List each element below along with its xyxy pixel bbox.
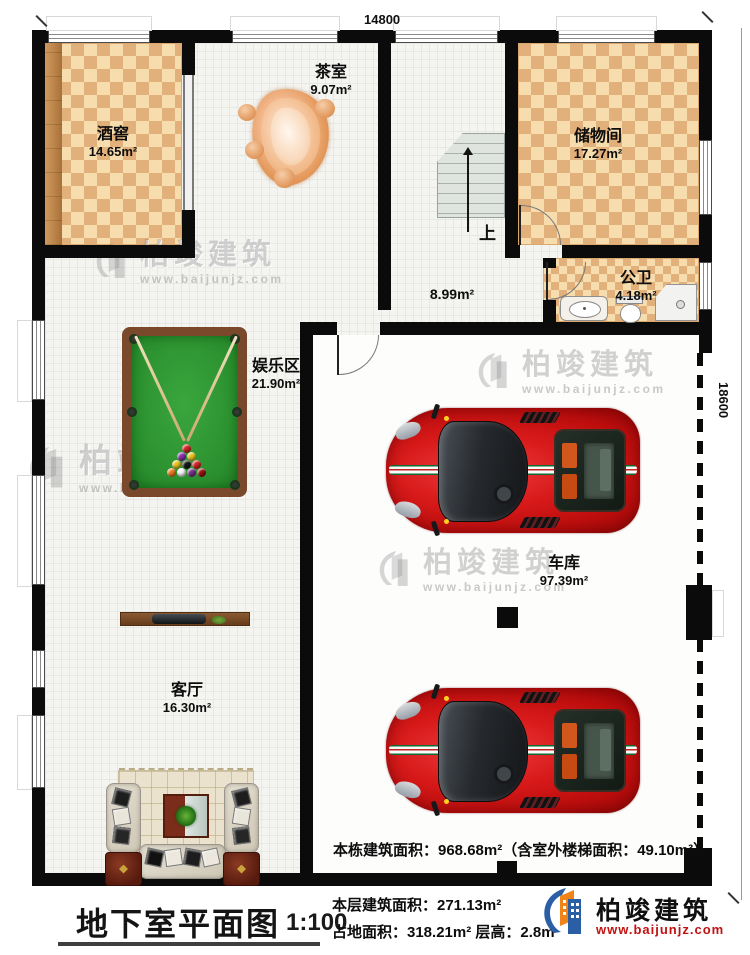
wall-segment [182, 43, 195, 75]
sheet-title: 地下室平面图 [76, 899, 280, 945]
room-label-tea-room: 茶室 9.07m² [310, 64, 351, 97]
window [558, 30, 655, 43]
sink-drain [583, 307, 586, 310]
dimension-right-value: 18600 [716, 382, 731, 418]
room-label-living-room: 客厅 16.30m² [163, 682, 211, 715]
room-area: 16.30m² [163, 700, 211, 716]
room-name: 茶室 [310, 64, 351, 82]
wall-pier [686, 585, 712, 640]
window [32, 475, 45, 585]
stair-direction-arrow [467, 150, 469, 232]
wine-cellar-shelf [45, 43, 62, 245]
table-pocket [129, 480, 139, 490]
wall-segment [32, 400, 45, 475]
car-vent [519, 797, 561, 808]
billiard-ball [167, 468, 176, 477]
room-name: 公卫 [615, 270, 656, 288]
room-label-wine-cellar: 酒窖 14.65m² [89, 126, 137, 159]
window-sill [17, 320, 32, 402]
car-engine-bay [554, 429, 626, 512]
garden-stone [238, 104, 256, 121]
window [699, 140, 712, 215]
room-label-bathroom: 公卫 4.18m² [615, 270, 656, 303]
window [48, 30, 150, 43]
wall-segment [32, 585, 45, 650]
brand-website: www.baijunjz.com [596, 922, 724, 937]
pillow [200, 847, 220, 867]
sports-car-2 [386, 688, 640, 813]
room-area: 8.99m² [430, 286, 474, 303]
window-sill [17, 475, 32, 587]
wall-segment [380, 322, 712, 335]
sliding-door [183, 75, 194, 210]
billiard-ball [197, 468, 206, 477]
room-area: 9.07m² [310, 82, 351, 98]
room-name: 娱乐区 [252, 358, 300, 376]
room-label-hall: 8.99m² [430, 286, 474, 303]
dimension-tick [701, 11, 713, 23]
room-area: 21.90m² [252, 376, 300, 392]
wall-segment [32, 43, 45, 320]
pillow [112, 807, 131, 826]
room-label-entertainment: 娱乐区 21.90m² [252, 358, 300, 391]
window [232, 30, 338, 43]
window [395, 30, 498, 43]
car-badge [444, 519, 449, 524]
room-name: 车库 [540, 555, 588, 573]
pillow [164, 848, 183, 867]
window [32, 650, 45, 688]
title-underline [58, 942, 320, 946]
garden-stone [315, 99, 335, 118]
billiard-ball [177, 468, 186, 477]
pillow [112, 826, 131, 845]
garden-stone [245, 141, 264, 159]
room-name: 储物间 [574, 128, 622, 146]
pillow [144, 847, 164, 867]
window-sill [46, 16, 152, 31]
floor-area-stat: 本层建筑面积：271.13m² [332, 894, 501, 915]
wall-segment [699, 43, 712, 140]
dimension-top-value: 14800 [364, 12, 400, 27]
window-sill [17, 715, 32, 790]
dimension-line-right [741, 28, 742, 900]
side-table [223, 852, 260, 886]
pillow [232, 807, 251, 826]
room-label-garage: 车库 97.39m² [540, 555, 588, 588]
window-sill [393, 16, 500, 31]
shower-drain [676, 300, 685, 309]
wall-pier [497, 861, 517, 873]
car-vent [519, 692, 561, 703]
table-pocket [232, 407, 242, 417]
table-plant [176, 806, 196, 826]
wall-segment [655, 30, 712, 43]
window-sill [712, 590, 724, 637]
brand-logo-icon [542, 886, 592, 940]
wall-segment [378, 43, 391, 310]
side-table [105, 852, 142, 886]
room-area: 17.27m² [574, 146, 622, 162]
wall-segment [32, 688, 45, 715]
car-badge [444, 696, 449, 701]
side-table-knob [237, 865, 246, 874]
steering-wheel [494, 484, 514, 504]
wall-segment [300, 322, 313, 886]
steering-wheel [494, 764, 514, 784]
car-badge [444, 416, 449, 421]
window [699, 262, 712, 310]
structural-column [497, 607, 518, 628]
side-table-knob [119, 865, 128, 874]
room-label-storage: 储物间 17.27m² [574, 128, 622, 161]
wall-segment [505, 245, 520, 258]
building-area-note: 本栋建筑面积：968.68m²（含室外楼梯面积：49.10m²） [333, 839, 708, 860]
toilet [620, 304, 641, 323]
car-windshield [438, 701, 528, 802]
wall-segment [32, 30, 48, 43]
car-engine-bay [554, 709, 626, 792]
room-area: 4.18m² [615, 288, 656, 304]
wall-segment [338, 30, 395, 43]
room-name: 客厅 [163, 682, 211, 700]
garden-stone [274, 168, 295, 188]
window-sill [556, 16, 657, 31]
room-area: 97.39m² [540, 573, 588, 589]
stair-up-label: 上 [479, 219, 496, 244]
wall-segment [498, 30, 558, 43]
car-windshield [438, 421, 528, 522]
sports-car-1 [386, 408, 640, 533]
room-name: 酒窖 [89, 126, 137, 144]
billiard-ball [187, 468, 196, 477]
footprint-stat: 占地面积：318.21m² 层高：2.8m [332, 921, 555, 942]
car-badge [444, 799, 449, 804]
window-sill [230, 16, 340, 31]
wall-segment [543, 300, 556, 322]
table-pocket [127, 407, 137, 417]
wall-segment [505, 43, 518, 258]
pillow [232, 826, 251, 845]
table-pocket [230, 480, 240, 490]
tv [152, 614, 206, 624]
car-vent [519, 412, 561, 423]
tv-decor-plant [212, 616, 226, 624]
window [32, 715, 45, 788]
wall-segment [562, 245, 712, 258]
car-vent [519, 517, 561, 528]
window [32, 320, 45, 400]
dimension-tick [727, 892, 739, 904]
wall-segment [32, 245, 195, 258]
basement-floorplan-sheet: 柏竣建筑 www.baijunjz.com 柏竣建筑 www.baijunjz.… [0, 0, 750, 955]
room-area: 14.65m² [89, 144, 137, 160]
wall-segment [32, 788, 45, 886]
wall-segment [150, 30, 232, 43]
